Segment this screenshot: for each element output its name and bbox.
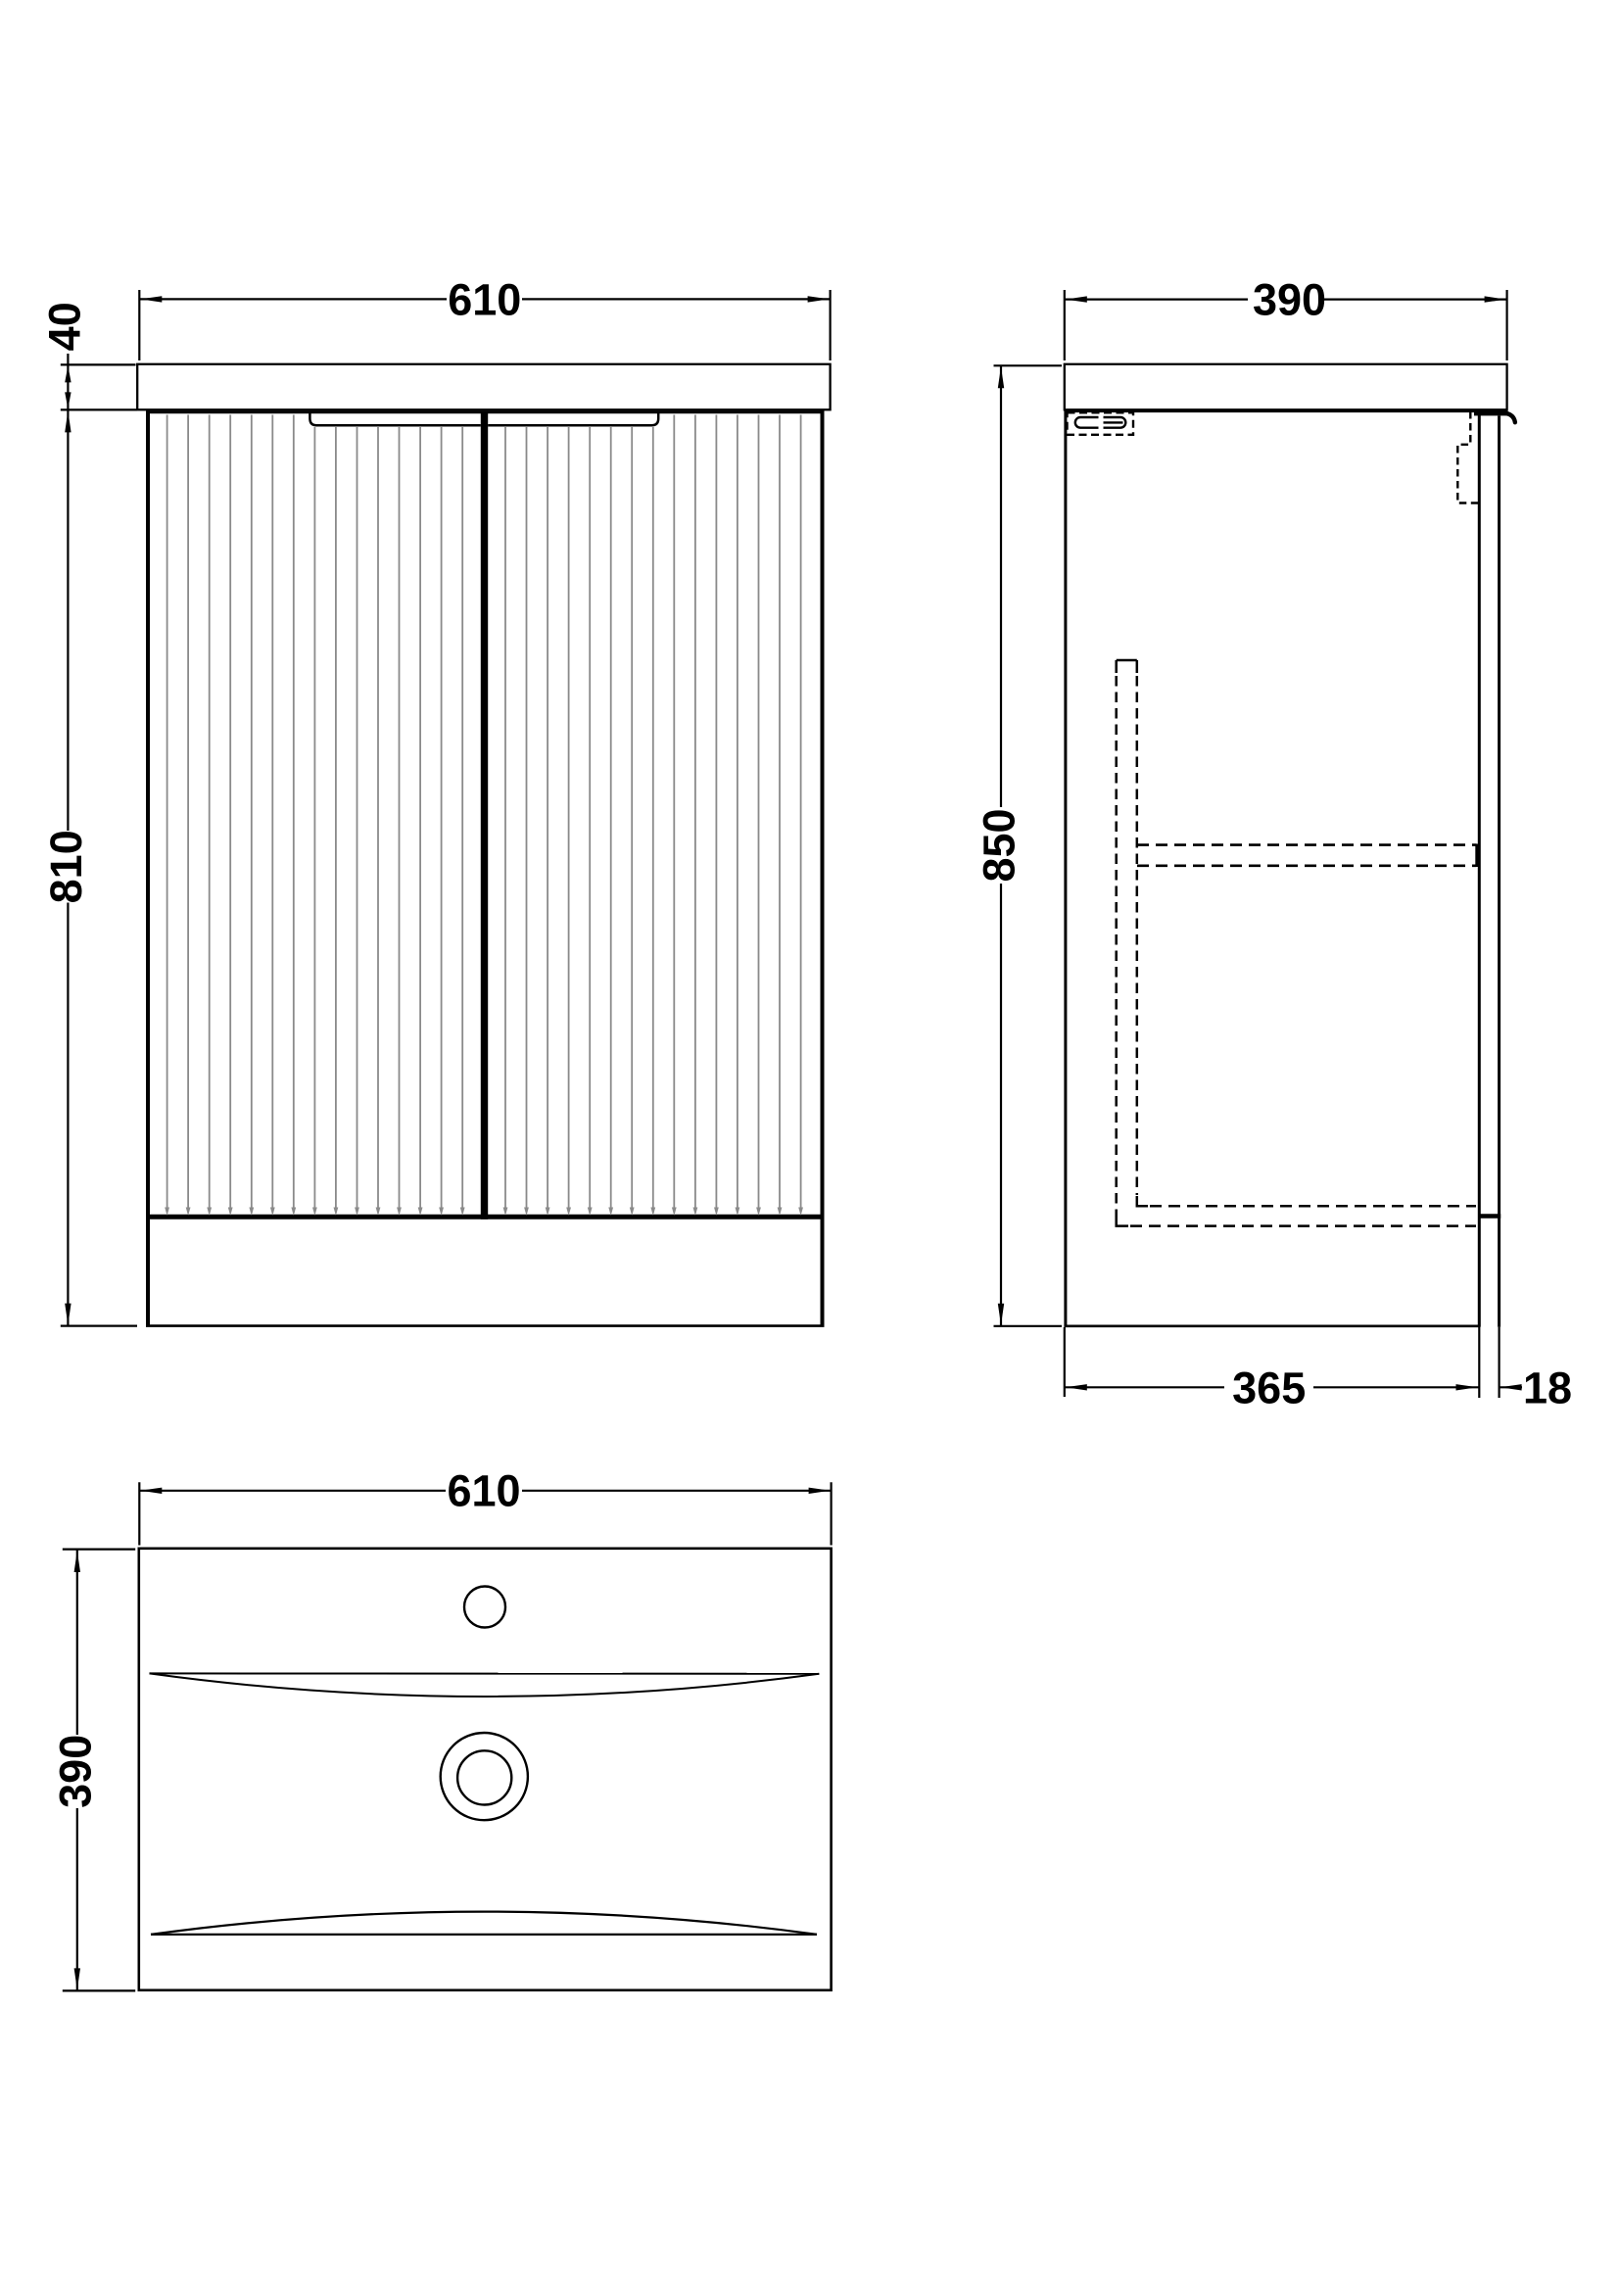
svg-text:365: 365 [1232,1363,1306,1412]
svg-text:610: 610 [447,1466,520,1516]
svg-text:40: 40 [40,302,90,351]
svg-text:850: 850 [975,808,1024,882]
svg-text:390: 390 [1253,275,1326,325]
svg-text:18: 18 [1523,1363,1572,1412]
svg-text:810: 810 [41,830,91,903]
svg-text:390: 390 [50,1735,100,1808]
svg-text:610: 610 [448,274,521,324]
